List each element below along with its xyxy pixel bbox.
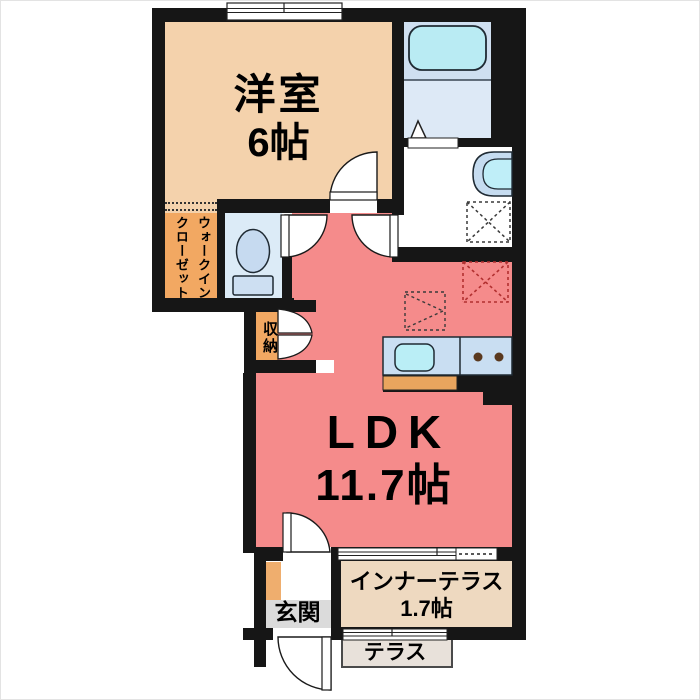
entrance-door-arc: [278, 637, 331, 690]
walk-in-closet-label: ウォークインクローゼット: [172, 216, 214, 302]
window-ldk-south: [338, 548, 456, 560]
western-room-label: 洋室: [165, 72, 392, 117]
entrance-label: 玄関: [264, 600, 331, 625]
ldk-size: 11.7帖: [256, 462, 512, 510]
storage-label: 収納: [257, 316, 277, 360]
terrace-label: テラス: [341, 642, 449, 665]
floorplan-image: 洋室 6帖 ウォークインクローゼット 収納 LDK 11.7帖 玄関 インナーテ…: [0, 0, 700, 700]
kitchen-counter: [383, 337, 512, 390]
bathroom-door-triangle: [408, 121, 458, 148]
window-western-room: [227, 3, 342, 20]
inner-terrace-label: インナーテラス: [341, 570, 512, 594]
washing-machine-space: [467, 202, 510, 242]
storage-bifold-door: [278, 309, 312, 359]
window-ldk-vent: [456, 548, 497, 560]
ldk-entrance-door-arc: [283, 513, 330, 552]
toilet-icon: [233, 230, 273, 296]
toilet-door-arc: [281, 215, 327, 257]
counter-space: [405, 292, 445, 330]
kitchen-base-cabinet: [383, 376, 457, 390]
refrigerator-space: [463, 262, 508, 302]
bathtub-icon: [404, 26, 491, 80]
washbasin-icon: [473, 152, 512, 196]
western-room-size: 6帖: [165, 122, 392, 165]
kitchen-sink-icon: [395, 344, 434, 371]
window-terrace: [343, 629, 447, 640]
inner-terrace-size: 1.7帖: [341, 597, 512, 621]
ldk-label: LDK: [256, 408, 512, 458]
washroom-door-arc: [352, 215, 398, 257]
